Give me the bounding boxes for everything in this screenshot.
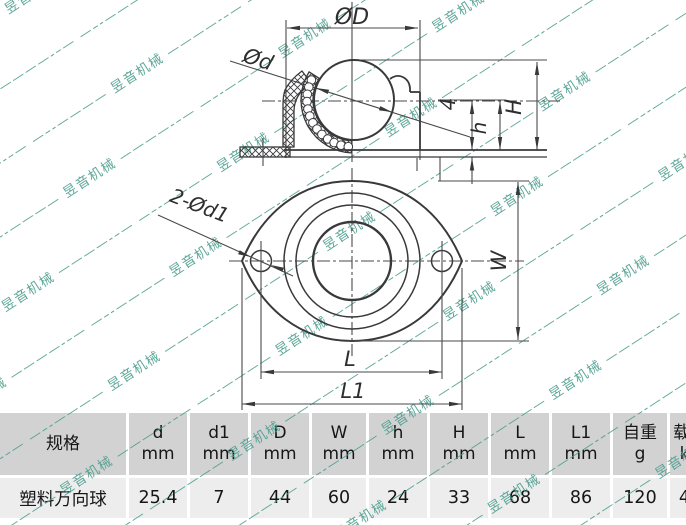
ball-opening-circle: [313, 222, 391, 300]
ball-side: [314, 60, 394, 140]
col-header-spec: 规格: [0, 413, 126, 475]
col-header-h: hmm: [369, 413, 427, 475]
col-header-weight: 自重g: [613, 413, 667, 475]
col-header-L: Lmm: [491, 413, 549, 475]
spec-table: 规格 dmm d1mm Dmm Wmm hmm Hmm Lmm L1mm 自重g…: [0, 413, 686, 518]
col-header-H: Hmm: [430, 413, 488, 475]
dim-label-ball-dia: Ød: [239, 43, 276, 76]
mount-hole-right: [432, 251, 453, 272]
dim-label-h: h: [467, 122, 491, 135]
cell-d: 25.4: [129, 478, 187, 518]
centerlines: [229, 101, 560, 356]
col-header-L1: L1mm: [552, 413, 610, 475]
cell-W: 60: [312, 478, 366, 518]
flange-outline: [242, 181, 462, 341]
col-header-d: dmm: [129, 413, 187, 475]
plan-view: [242, 181, 462, 341]
cell-weight: 120: [613, 478, 667, 518]
bracket-section: [240, 71, 352, 157]
dim-label-H: H: [502, 99, 526, 115]
side-view-outline: [284, 60, 547, 157]
cell-spec-name: 塑料万向球: [0, 478, 126, 518]
cell-D: 44: [251, 478, 309, 518]
cell-L1: 86: [552, 478, 610, 518]
col-header-load: 载荷kg: [670, 413, 686, 475]
dim-label-holes: 2-Ød1: [167, 183, 233, 227]
housing-outer-circle: [284, 193, 420, 329]
catalog-page: 规格 dmm d1mm Dmm Wmm hmm Hmm Lmm L1mm 自重g…: [0, 0, 686, 525]
dim-label-L1: L1: [340, 379, 365, 403]
col-header-D: Dmm: [251, 413, 309, 475]
bearing-ball-chain: [303, 76, 353, 151]
dim-label-protrusion: 4: [436, 98, 460, 111]
dim-label-W: W: [487, 249, 511, 271]
housing-rim-circle: [296, 205, 408, 317]
cell-h: 24: [369, 478, 427, 518]
mount-hole-left: [251, 251, 272, 272]
side-view-extension-lines: [230, 2, 547, 184]
dim-label-outer-dia: ØD: [334, 5, 369, 30]
col-header-d1: d1mm: [190, 413, 248, 475]
cell-L: 68: [491, 478, 549, 518]
col-header-W: Wmm: [312, 413, 366, 475]
plan-view-dim-lines: [158, 181, 529, 410]
cell-H: 33: [430, 478, 488, 518]
cell-d1: 7: [190, 478, 248, 518]
dimension-arrows: [238, 26, 539, 406]
cell-load: 45: [670, 478, 686, 518]
dim-label-L: L: [344, 347, 356, 371]
